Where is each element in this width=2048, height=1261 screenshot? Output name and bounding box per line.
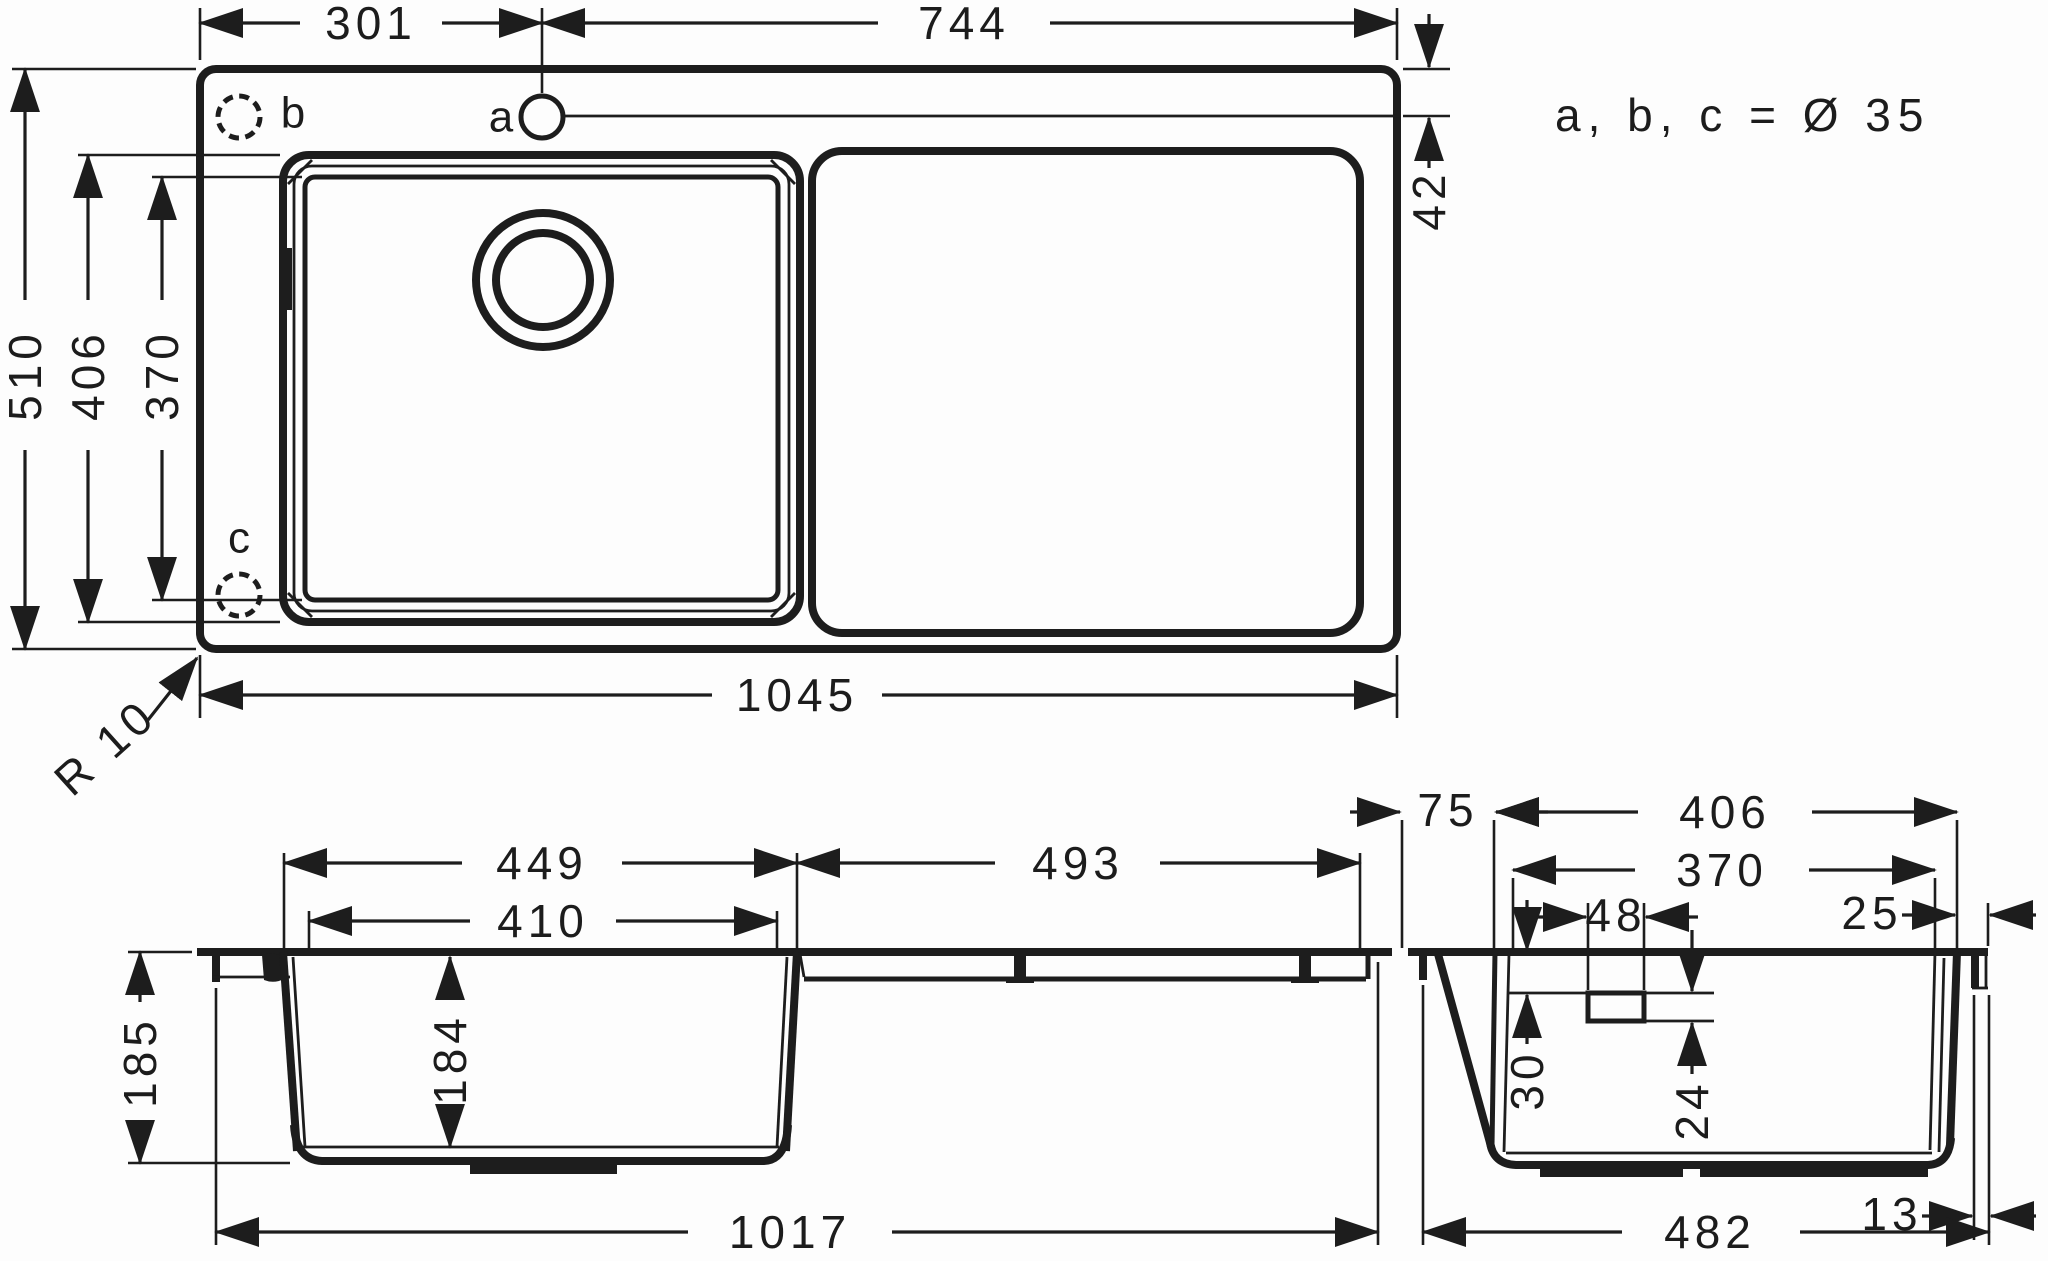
tap-hole-c (218, 574, 260, 616)
front-view (197, 952, 1392, 1174)
front-channel-start (800, 954, 804, 977)
dim-744: 744 (918, 0, 1010, 49)
dim-30: 30 (1501, 1049, 1553, 1110)
dim-510: 510 (0, 329, 51, 421)
side-view (1408, 952, 1988, 1177)
dim-185: 185 (114, 1016, 166, 1108)
front-bowl-wall-right (786, 952, 797, 1151)
front-clip-2 (1291, 956, 1319, 983)
side-bowl-bottom-outer (1490, 1138, 1951, 1165)
dim-25: 25 (1841, 887, 1902, 939)
dim-1017: 1017 (729, 1206, 851, 1258)
dim-r10: R 10 (44, 688, 166, 805)
bowl-inner-top (305, 177, 778, 600)
dim-184: 184 (424, 1013, 476, 1105)
dim-449: 449 (496, 837, 588, 889)
top-view: a b c (200, 69, 1397, 649)
dim-370-side: 370 (1676, 844, 1768, 896)
dim-24: 24 (1666, 1079, 1718, 1140)
dim-406-top: 406 (62, 329, 114, 421)
bowl-outer-top (283, 155, 800, 622)
drain-inner (496, 233, 590, 327)
tap-hole-a (521, 96, 563, 138)
front-clip-1 (1006, 956, 1034, 983)
tap-hole-b (218, 96, 260, 138)
overflow-mark-top (281, 248, 292, 310)
hole-label-a: a (489, 93, 514, 142)
dim-75: 75 (1417, 784, 1478, 836)
hole-label-b: b (281, 89, 305, 138)
side-wall-rear-outer (1438, 954, 1492, 1150)
side-wall-front-outer (1950, 952, 1957, 1145)
side-wall-front-inner (1930, 952, 1935, 1150)
dim-406-side: 406 (1679, 786, 1771, 838)
dim-301: 301 (325, 0, 417, 49)
dim-410: 410 (497, 895, 589, 947)
overflow-hole-side (1588, 993, 1644, 1021)
drawing-canvas: a b c 301 744 (0, 0, 2048, 1261)
front-view-dimensions: 449 493 410 185 184 1017 (114, 837, 1378, 1258)
drainboard-top (812, 151, 1360, 633)
dim-1045: 1045 (736, 669, 858, 721)
hole-label-c: c (228, 514, 250, 563)
sink-dimension-drawing: a b c 301 744 (0, 0, 2048, 1261)
dim-482: 482 (1664, 1206, 1756, 1258)
side-wall-front-mid (1939, 958, 1944, 1152)
side-wall-rear-cut (1492, 952, 1495, 1145)
front-bowl-bottom-outer (294, 1125, 788, 1161)
front-drain-boss (470, 1161, 617, 1174)
dim-48: 48 (1585, 889, 1646, 941)
side-pad-1 (1540, 1165, 1683, 1177)
dim-370-top: 370 (136, 329, 188, 421)
holes-note: a, b, c = Ø 35 (1555, 89, 1930, 141)
dim-42: 42 (1403, 169, 1455, 230)
side-pad-2 (1700, 1165, 1928, 1177)
dim-493: 493 (1032, 837, 1124, 889)
